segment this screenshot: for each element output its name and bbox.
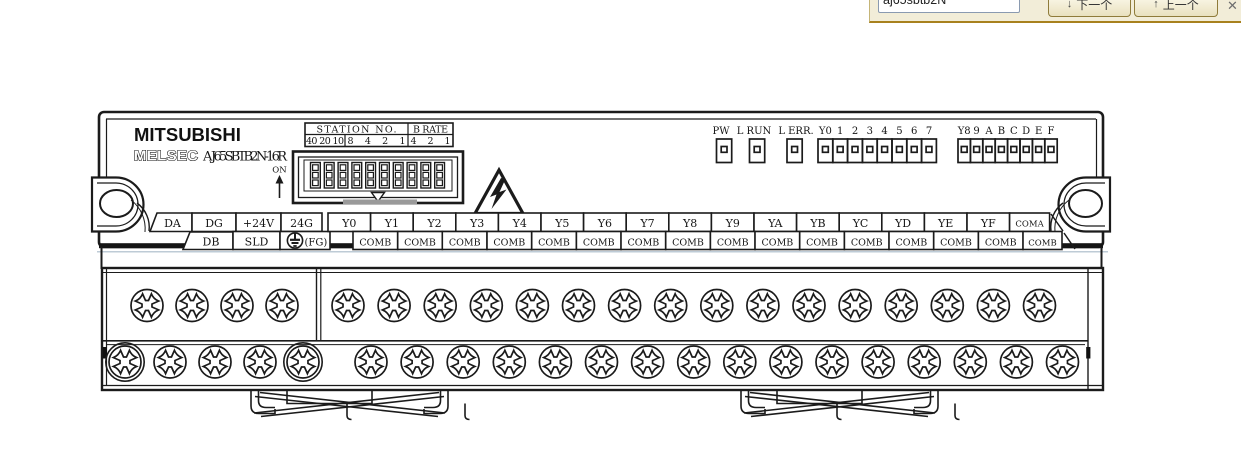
terminal-label-dg: DG bbox=[205, 217, 223, 230]
terminal-label-comb: COMB bbox=[359, 237, 391, 248]
station-brate-table: STATION NO. B RATE 40 20 10 8 4 2 1 4 2 … bbox=[305, 123, 453, 147]
led bbox=[833, 139, 848, 163]
output-leds-y0-y7: Y01234567 bbox=[818, 126, 936, 163]
terminal-screw[interactable] bbox=[908, 346, 940, 378]
led-label: 4 bbox=[881, 126, 887, 137]
find-next-label: 下一个 bbox=[1076, 0, 1112, 13]
terminal-label-output: YC bbox=[852, 217, 869, 230]
dip-switch[interactable] bbox=[352, 163, 362, 189]
find-prev-label: 上一个 bbox=[1163, 0, 1199, 13]
dip-switch-notch bbox=[423, 172, 429, 178]
terminal-label-output: Y2 bbox=[426, 217, 441, 230]
terminal-screw[interactable] bbox=[862, 346, 894, 378]
terminal-label-comb: COMB bbox=[940, 237, 972, 248]
terminal-label-comb: COMB bbox=[896, 237, 928, 248]
terminal-label-comb: COMB bbox=[583, 237, 615, 248]
terminal-screw[interactable] bbox=[516, 290, 548, 322]
led-label: 6 bbox=[911, 126, 917, 137]
terminal-screw[interactable] bbox=[816, 346, 848, 378]
terminal-screw[interactable] bbox=[447, 346, 479, 378]
led bbox=[848, 139, 863, 163]
terminal-label-output: YB bbox=[809, 217, 825, 230]
dip-switch-notch bbox=[437, 165, 443, 171]
on-label: ON bbox=[272, 166, 287, 176]
dip-switch-notch bbox=[409, 172, 415, 178]
terminal-screw[interactable] bbox=[931, 290, 963, 322]
terminal-screw[interactable] bbox=[586, 346, 618, 378]
terminal-label-comb: COMB bbox=[672, 237, 704, 248]
led-label: C bbox=[1010, 126, 1018, 137]
terminal-label-output: Y6 bbox=[597, 217, 612, 230]
terminal-screw[interactable] bbox=[632, 346, 664, 378]
dip-switch-notch bbox=[340, 172, 346, 178]
terminal-label-db: DB bbox=[203, 235, 220, 248]
led-lens bbox=[897, 147, 903, 153]
led bbox=[717, 139, 732, 163]
terminal-label-sld: SLD bbox=[245, 235, 269, 248]
terminal-screw[interactable] bbox=[470, 290, 502, 322]
led-label: D bbox=[1022, 126, 1030, 137]
terminal-screw[interactable] bbox=[609, 290, 641, 322]
terminal-label-comb: COMB bbox=[449, 237, 481, 248]
led-lens bbox=[823, 147, 829, 153]
dip-switch-notch bbox=[354, 180, 360, 186]
dip-switch[interactable] bbox=[311, 163, 321, 189]
dip-switch-notch bbox=[368, 165, 374, 171]
led-lens bbox=[837, 147, 843, 153]
terminal-screw[interactable] bbox=[287, 346, 319, 378]
terminal-label-output: YD bbox=[894, 217, 911, 230]
terminal-screw[interactable] bbox=[355, 346, 387, 378]
dip-switch-notch bbox=[437, 172, 443, 178]
terminal-screw[interactable] bbox=[221, 290, 253, 322]
dip-switch[interactable] bbox=[366, 163, 376, 189]
terminal-label-output: Y7 bbox=[639, 217, 654, 230]
led-lens bbox=[974, 147, 980, 153]
terminal-label-comb: COMB bbox=[806, 237, 838, 248]
terminal-screws[interactable] bbox=[106, 290, 1079, 382]
output-leds-y8-yf: Y89ABCDEF bbox=[957, 126, 1057, 163]
led bbox=[750, 139, 765, 163]
led-label: F bbox=[1048, 126, 1055, 137]
led bbox=[862, 139, 877, 163]
led bbox=[892, 139, 907, 163]
led bbox=[1020, 139, 1032, 163]
terminal-label-coma: COMA bbox=[1015, 219, 1044, 229]
find-toolbar: ↓ 下一个 ↑ 上一个 ✕ bbox=[869, 0, 1241, 23]
terminal-screw[interactable] bbox=[977, 290, 1009, 322]
led bbox=[907, 139, 922, 163]
dip-switch[interactable] bbox=[421, 163, 431, 189]
terminal-screw[interactable] bbox=[1024, 290, 1056, 322]
led-label: 1 bbox=[837, 126, 843, 137]
terminal-screw[interactable] bbox=[424, 290, 456, 322]
led bbox=[1032, 139, 1044, 163]
terminal-label-comb: COMB bbox=[717, 237, 749, 248]
terminal-label-output: Y5 bbox=[554, 217, 569, 230]
terminal-screw[interactable] bbox=[724, 346, 756, 378]
terminal-screw[interactable] bbox=[678, 346, 710, 378]
dip-switch-notch bbox=[368, 180, 374, 186]
dip-switch-block: ON bbox=[272, 152, 463, 205]
terminal-screw[interactable] bbox=[378, 290, 410, 322]
led-lens bbox=[721, 147, 727, 153]
terminal-screw[interactable] bbox=[332, 290, 364, 322]
brand-text: MITSUBISHI bbox=[134, 124, 241, 145]
led-lens bbox=[926, 147, 932, 153]
terminal-screw[interactable] bbox=[199, 346, 231, 378]
terminal-screw[interactable] bbox=[793, 290, 825, 322]
terminal-screw[interactable] bbox=[1000, 346, 1032, 378]
find-input[interactable] bbox=[878, 0, 1020, 13]
terminal-label-comb: COMB bbox=[628, 237, 660, 248]
din-rail-clip-left bbox=[251, 391, 470, 420]
dip-switch-notch bbox=[340, 165, 346, 171]
dip-switch-notch bbox=[326, 172, 332, 178]
dip-switch-notch bbox=[354, 165, 360, 171]
led-lens bbox=[961, 147, 967, 153]
led bbox=[1008, 139, 1020, 163]
dip-switches[interactable] bbox=[311, 163, 445, 189]
terminal-label-comb: COMB bbox=[538, 237, 570, 248]
terminal-label-output: Y4 bbox=[512, 217, 527, 230]
terminal-label-comb: COMB bbox=[985, 237, 1017, 248]
terminal-label-output: Y9 bbox=[725, 217, 740, 230]
dip-switch[interactable] bbox=[407, 163, 417, 189]
led-label: 2 bbox=[852, 126, 858, 137]
dip-switch-notch bbox=[313, 165, 319, 171]
terminal-label-output: Y1 bbox=[384, 217, 399, 230]
terminal-label-output: YF bbox=[980, 217, 996, 230]
led-label: B bbox=[998, 126, 1005, 137]
status-leds: PWL RUNL ERR. bbox=[712, 126, 813, 163]
terminal-screw[interactable] bbox=[539, 346, 571, 378]
series-logo: MELSEC bbox=[134, 148, 198, 165]
dip-switch-notch bbox=[340, 180, 346, 186]
station-ones-bits: 8 4 2 1 bbox=[348, 136, 406, 147]
led-lens bbox=[1048, 147, 1054, 153]
led-label: Y0 bbox=[818, 126, 832, 137]
b-rate-header: B RATE bbox=[413, 125, 448, 136]
dip-switch-notch bbox=[382, 165, 388, 171]
led-label: 9 bbox=[973, 126, 979, 137]
led-lens bbox=[754, 147, 760, 153]
terminal-label-24v: +24V bbox=[243, 217, 275, 230]
dip-switch[interactable] bbox=[338, 163, 348, 189]
led bbox=[995, 139, 1007, 163]
terminal-screw[interactable] bbox=[701, 290, 733, 322]
dip-switch-notch bbox=[409, 165, 415, 171]
left-mounting-ear bbox=[92, 178, 149, 233]
dip-switch-notch bbox=[437, 180, 443, 186]
station-no-header: STATION NO. bbox=[317, 125, 397, 136]
led-label: Y8 bbox=[957, 126, 971, 137]
terminal-screw[interactable] bbox=[401, 346, 433, 378]
close-icon[interactable]: ✕ bbox=[1227, 0, 1238, 14]
right-mounting-ear bbox=[1051, 178, 1110, 233]
led bbox=[970, 139, 982, 163]
terminal-label-comb: COMB bbox=[851, 237, 883, 248]
terminal-label-output: YA bbox=[767, 217, 783, 230]
terminal-label-fg: (FG) bbox=[305, 237, 328, 248]
led-label: L RUN bbox=[737, 126, 772, 137]
find-next-button[interactable]: ↓ 下一个 bbox=[1048, 0, 1131, 17]
led-label: 5 bbox=[896, 126, 902, 137]
led-label: E bbox=[1035, 126, 1042, 137]
terminal-screw[interactable] bbox=[493, 346, 525, 378]
terminal-screw[interactable] bbox=[770, 346, 802, 378]
led-lens bbox=[986, 147, 992, 153]
led bbox=[958, 139, 970, 163]
terminal-screw[interactable] bbox=[839, 290, 871, 322]
terminal-screw[interactable] bbox=[885, 290, 917, 322]
b-rate-bits: 4 2 1 bbox=[411, 136, 451, 147]
led bbox=[983, 139, 995, 163]
dip-switch-notch bbox=[409, 180, 415, 186]
din-rail-clip-right bbox=[741, 391, 960, 420]
terminal-screw[interactable] bbox=[563, 290, 595, 322]
led bbox=[922, 139, 937, 163]
dip-switch-notch bbox=[326, 180, 332, 186]
led bbox=[818, 139, 833, 163]
dip-switch-notch bbox=[395, 165, 401, 171]
terminal-screw[interactable] bbox=[131, 290, 163, 322]
dip-switch-notch bbox=[313, 172, 319, 178]
terminal-screw[interactable] bbox=[266, 290, 298, 322]
terminal-label-output: Y3 bbox=[469, 217, 484, 230]
led-lens bbox=[1036, 147, 1042, 153]
dip-switch[interactable] bbox=[393, 163, 403, 189]
terminal-label-output: YE bbox=[937, 217, 953, 230]
arrow-up-icon: ↑ bbox=[1153, 0, 1159, 10]
led-label: L ERR. bbox=[778, 126, 813, 137]
dip-switch-notch bbox=[382, 180, 388, 186]
dip-switch-notch bbox=[368, 172, 374, 178]
led-lens bbox=[1011, 147, 1017, 153]
terminal-label-comb: COMB bbox=[493, 237, 525, 248]
dip-switch-notch bbox=[423, 165, 429, 171]
terminal-label-comb: COMB bbox=[1028, 238, 1056, 248]
led-lens bbox=[1023, 147, 1029, 153]
terminal-screw[interactable] bbox=[109, 346, 141, 378]
dip-switch-notch bbox=[395, 172, 401, 178]
right-clip-tick bbox=[1086, 347, 1090, 359]
dip-switch[interactable] bbox=[380, 163, 390, 189]
led bbox=[877, 139, 892, 163]
dip-switch-notch bbox=[382, 172, 388, 178]
arrow-down-icon: ↓ bbox=[1067, 0, 1073, 10]
terminal-labels-comb: COMBCOMBCOMBCOMBCOMBCOMBCOMBCOMBCOMBCOMB… bbox=[353, 232, 1062, 250]
station-tens-bits: 40 20 10 bbox=[306, 136, 344, 147]
high-voltage-warning-icon bbox=[475, 170, 523, 214]
led-lens bbox=[792, 147, 798, 153]
led-lens bbox=[867, 147, 873, 153]
terminal-label-output: Y0 bbox=[341, 217, 356, 230]
led-label: 3 bbox=[867, 126, 873, 137]
terminal-label-output: Y8 bbox=[682, 217, 697, 230]
led bbox=[787, 139, 802, 163]
module-diagram: MITSUBISHI MELSEC A J65SBTB2N-16R STATIO… bbox=[0, 0, 1241, 475]
dip-switch-notch bbox=[313, 180, 319, 186]
terminal-screw[interactable] bbox=[176, 290, 208, 322]
led-lens bbox=[999, 147, 1005, 153]
dip-switch[interactable] bbox=[324, 163, 334, 189]
terminal-label-comb: COMB bbox=[762, 237, 794, 248]
terminal-label-comb: COMB bbox=[404, 237, 436, 248]
terminal-screw[interactable] bbox=[1047, 346, 1079, 378]
dip-switch-notch bbox=[354, 172, 360, 178]
terminal-screw[interactable] bbox=[954, 346, 986, 378]
led-lens bbox=[852, 147, 858, 153]
terminal-screw[interactable] bbox=[747, 290, 779, 322]
terminal-screw[interactable] bbox=[655, 290, 687, 322]
terminal-labels-outputs: Y0Y1Y2Y3Y4Y5Y6Y7Y8Y9YAYBYCYDYEYF bbox=[328, 213, 1010, 232]
terminal-screw[interactable] bbox=[154, 346, 186, 378]
led-lens bbox=[882, 147, 888, 153]
led bbox=[1045, 139, 1057, 163]
dip-switch-notch bbox=[326, 165, 332, 171]
terminal-label-da: DA bbox=[164, 217, 182, 230]
led-label: A bbox=[984, 126, 993, 137]
led-lens bbox=[911, 147, 917, 153]
dip-switch-notch bbox=[423, 180, 429, 186]
find-prev-button[interactable]: ↑ 上一个 bbox=[1134, 0, 1218, 17]
dip-switch-notch bbox=[395, 180, 401, 186]
terminal-screw[interactable] bbox=[244, 346, 276, 378]
terminal-label-coma-cell: COMA bbox=[1010, 213, 1050, 232]
model-number: A J65SBTB2N-16R bbox=[202, 150, 288, 165]
terminal-label-24g: 24G bbox=[290, 217, 313, 230]
led-label: PW bbox=[712, 126, 730, 137]
dip-switch[interactable] bbox=[435, 163, 445, 189]
led-label: 7 bbox=[926, 126, 932, 137]
